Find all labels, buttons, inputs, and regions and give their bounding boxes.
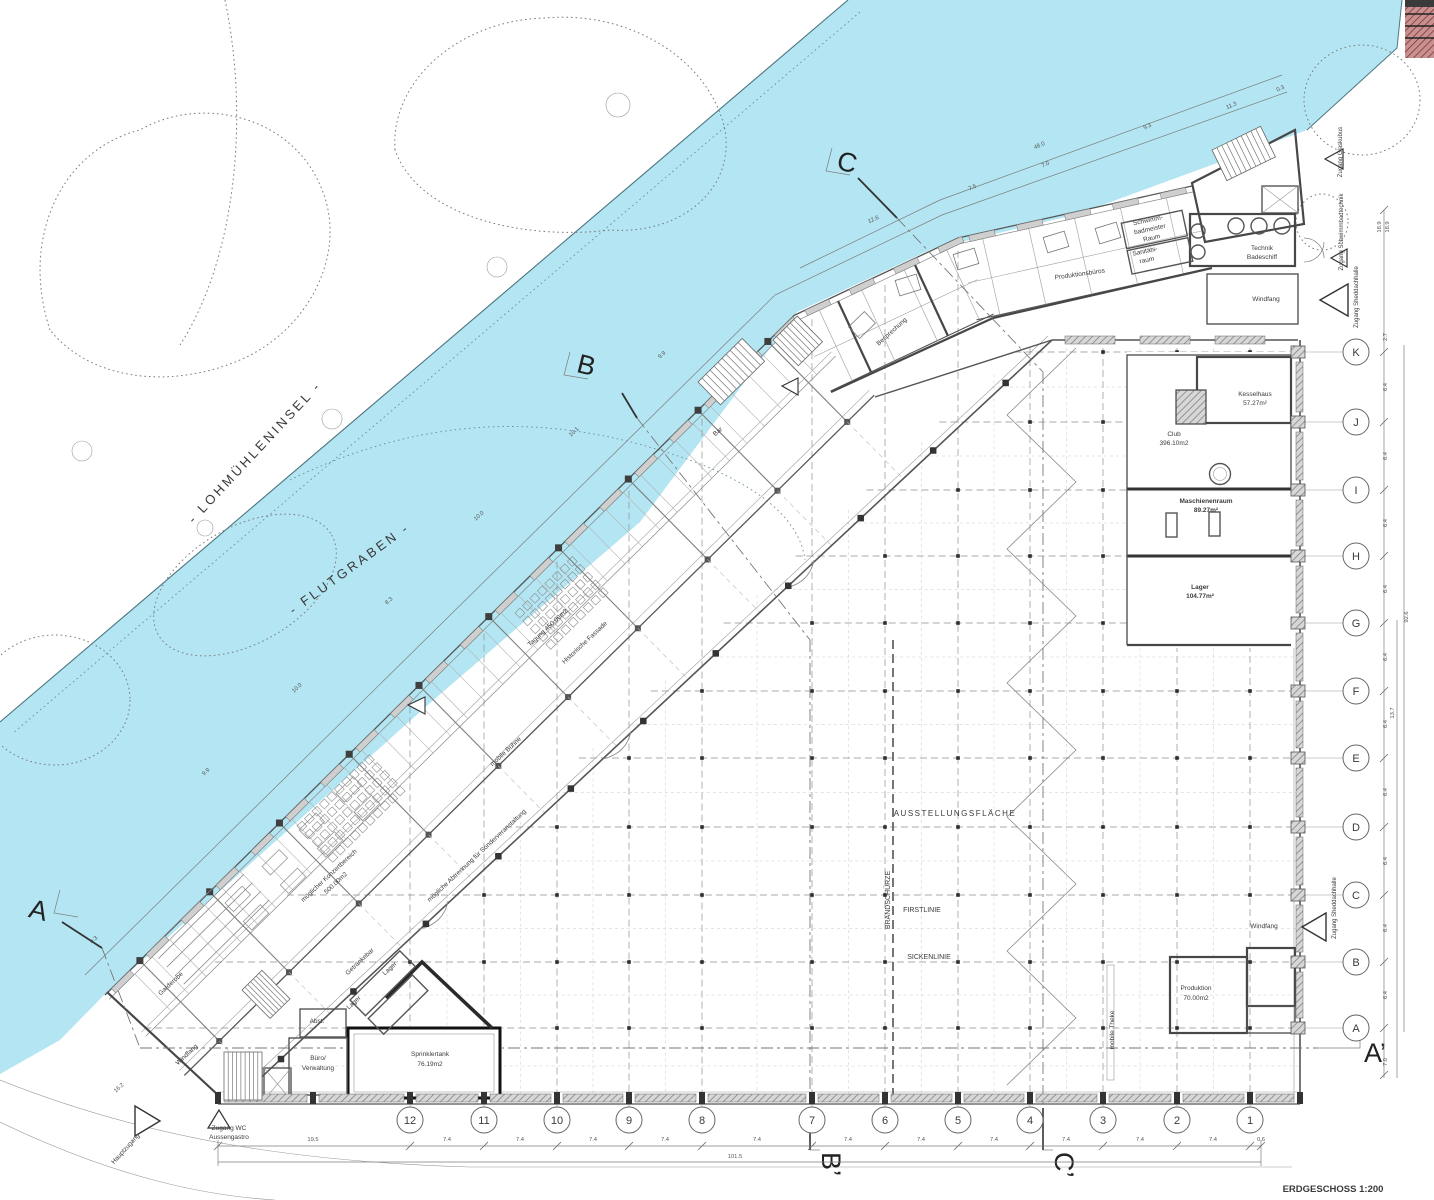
plan-rect <box>883 825 887 829</box>
plan-rect <box>561 625 571 635</box>
plan-rect <box>387 778 397 788</box>
plan-rect <box>956 756 960 760</box>
label-firstlinie: FIRSTLINIE <box>903 907 941 914</box>
plan-rect <box>1028 488 1032 492</box>
plan-rect <box>1296 432 1303 480</box>
glaskubus-door-2 <box>1304 242 1324 262</box>
plan-rect <box>485 613 492 620</box>
plan-rect <box>327 807 337 817</box>
plan-rect <box>955 1092 961 1104</box>
plan-line <box>831 318 993 392</box>
plan-rect <box>546 639 556 649</box>
plan-line <box>993 268 1212 318</box>
label-maschinenraum-1: Maschienenraum <box>1179 498 1232 505</box>
label-maschinenraum-2: 89.27m² <box>1194 507 1219 514</box>
label-ausstellungsflaeche: AUSSTELLUNGSFLÄCHE <box>894 809 1017 818</box>
plan-rect <box>1101 420 1105 424</box>
plan-text: 7 <box>809 1115 815 1127</box>
label-windfang-right: Windfang <box>1250 923 1278 930</box>
plan-rect <box>276 820 283 827</box>
plan-rect <box>1291 956 1305 968</box>
dim-label: 7.4 <box>589 1137 598 1143</box>
plan-rect <box>1174 1092 1180 1104</box>
plan-text: F <box>1353 686 1360 698</box>
plan-rect <box>555 960 559 964</box>
plan-rect <box>1296 633 1303 681</box>
plan-rect <box>481 1092 487 1104</box>
plan-line <box>359 903 402 946</box>
plan-rect <box>1296 972 1303 1018</box>
plan-line <box>489 617 568 697</box>
plan-text: 9 <box>626 1115 632 1127</box>
plan-text: 7.0 <box>1383 1058 1389 1066</box>
plan-rect <box>1028 1026 1032 1030</box>
label-besprechung: Besprechung <box>875 316 908 347</box>
plan-rect <box>810 960 814 964</box>
plan-rect <box>810 621 814 625</box>
plan-rect <box>1101 1026 1105 1030</box>
label-zugang-schwimmbadtechnik: Zugang Schwimmbadtechnik <box>1339 192 1345 270</box>
plan-rect <box>1028 960 1032 964</box>
plan-rect <box>635 1094 696 1102</box>
plan-rect <box>1296 362 1303 412</box>
plan-rect <box>883 756 887 760</box>
plan-rect <box>343 822 353 832</box>
plan-rect <box>699 1092 705 1104</box>
plan-rect <box>320 814 330 824</box>
plan-text: C’ <box>1049 1152 1079 1178</box>
plan-rect <box>576 595 586 605</box>
plan-rect <box>1028 420 1032 424</box>
plan-text: 8 <box>699 1115 705 1127</box>
plan-rect <box>1291 685 1305 697</box>
label-produktion-1: Produktion <box>1180 985 1211 992</box>
plan-rect <box>626 1092 632 1104</box>
plan-rect <box>380 770 390 780</box>
plan-rect <box>1101 554 1105 558</box>
plan-rect <box>358 808 368 818</box>
plan-text: 6.4 <box>1383 518 1389 527</box>
plan-rect <box>327 822 337 832</box>
plan-rect <box>1028 621 1032 625</box>
label-sickenlinie: SICKENLINIE <box>907 954 951 961</box>
plan-text: G <box>1352 618 1361 630</box>
plan-rect <box>1065 336 1115 344</box>
plan-rect <box>350 988 357 995</box>
plan-rect <box>554 1092 560 1104</box>
plan-rect <box>1183 1094 1244 1102</box>
plan-rect <box>1256 1094 1294 1102</box>
plan-rect <box>1175 1026 1179 1030</box>
plan-text: B <box>1352 957 1359 969</box>
plan-text: 16.2 <box>113 1082 125 1094</box>
plan-text: 4 <box>1027 1115 1033 1127</box>
plan-rect <box>1291 484 1305 496</box>
plan-rect <box>700 960 704 964</box>
plan-text: 5 <box>955 1115 961 1127</box>
plan-text: 6.4 <box>1383 719 1389 728</box>
plan-text: 6.4 <box>1383 856 1389 865</box>
plan-text: 11 <box>478 1115 489 1127</box>
plan-rect <box>1296 768 1303 817</box>
plan-rect <box>1296 500 1303 546</box>
plan-line <box>559 548 638 628</box>
plan-rect <box>278 1056 285 1063</box>
plan-text: raum <box>1139 255 1155 265</box>
plan-rect <box>1296 905 1303 952</box>
plan-text: H <box>1352 551 1360 563</box>
plan-rect <box>956 488 960 492</box>
plan-rect <box>1140 336 1190 344</box>
plan-rect <box>490 1094 551 1102</box>
plan-rect <box>343 838 353 848</box>
plan-text: 10 <box>551 1115 563 1127</box>
entrance-triangle-sheddachhalle-right <box>1302 913 1326 941</box>
tree-trunk-3 <box>322 409 342 429</box>
plan-rect <box>482 893 486 897</box>
plan-rect <box>956 1026 960 1030</box>
tree-trunk-5 <box>197 520 213 536</box>
plan-text: B’ <box>816 1152 846 1176</box>
plan-rect <box>1175 825 1179 829</box>
plan-rect <box>335 815 345 825</box>
plan-rect <box>883 554 887 558</box>
plan-rect <box>1101 689 1105 693</box>
dim-label: 7.4 <box>443 1137 452 1143</box>
dim-label: 7.4 <box>1209 1137 1218 1143</box>
plan-rect <box>350 785 360 795</box>
plan-rect <box>1175 689 1179 693</box>
plan-rect <box>407 1092 413 1104</box>
label-zugang-sheddachhalle-top: Zugang Sheddachhalle <box>1354 265 1360 327</box>
plan-rect <box>280 868 306 893</box>
dim-label: 7.4 <box>917 1137 926 1143</box>
label-sprinklertank-2: 76.19m2 <box>417 1061 443 1068</box>
plan-text: 6.4 <box>1383 652 1389 661</box>
label-club-1: Club <box>1167 431 1181 438</box>
plan-rect <box>627 825 631 829</box>
dim-label: 7.4 <box>516 1137 525 1143</box>
plan-text: C <box>1352 890 1360 902</box>
plan-rect <box>764 338 771 345</box>
plan-rect <box>482 960 486 964</box>
plan-rect <box>1291 889 1305 901</box>
plan-line <box>915 265 948 336</box>
label-mobile-theke: mobile Theke <box>1109 1010 1116 1049</box>
plan-line <box>498 766 545 813</box>
plan-text: 13.7 <box>1390 707 1396 718</box>
kesselhaus-chimney <box>1176 390 1206 424</box>
plan-text: 6.4 <box>1383 382 1389 391</box>
plan-rect <box>310 1092 316 1104</box>
plan-rect <box>415 682 422 689</box>
plan-rect <box>1028 689 1032 693</box>
plan-rect <box>1291 1022 1305 1034</box>
plan-line <box>419 685 498 765</box>
plan-line <box>904 270 937 341</box>
plan-rect <box>1101 621 1105 625</box>
plan-text: 1 <box>1247 1115 1253 1127</box>
plan-rect <box>883 689 887 693</box>
plan-rect <box>591 595 601 605</box>
plan-text: E <box>1352 753 1359 765</box>
plan-rect <box>555 893 559 897</box>
plan-rect <box>956 621 960 625</box>
plan-rect <box>555 1026 559 1030</box>
plan-line <box>638 628 688 679</box>
plan-line <box>309 802 346 839</box>
dim-label: 7.4 <box>990 1137 999 1143</box>
plan-line <box>1029 228 1046 304</box>
plan-rect <box>1248 689 1252 693</box>
plan-rect <box>1296 566 1303 613</box>
label-zugang-wc-1: Zugang WC <box>212 1125 247 1132</box>
label-windfang-top: Windfang <box>1252 296 1280 303</box>
plan-line <box>289 972 330 1013</box>
plan-rect <box>555 825 559 829</box>
plan-rect <box>1248 756 1252 760</box>
label-hauptzugang: Hauptzugang <box>110 1132 141 1166</box>
plan-rect <box>1175 756 1179 760</box>
plan-rect <box>136 957 143 964</box>
plan-rect <box>883 1026 887 1030</box>
plan-rect <box>695 407 702 414</box>
plan-rect <box>553 632 563 642</box>
plan-text: K <box>1352 347 1360 359</box>
stairs <box>224 1052 262 1100</box>
label-buero-1: Büro/ <box>310 1055 326 1062</box>
plan-line <box>862 290 895 361</box>
plan-text: 6.4 <box>1383 787 1389 796</box>
plan-rect <box>304 814 314 824</box>
plan-line <box>983 239 1000 315</box>
plan-rect <box>1248 1026 1252 1030</box>
plan-rect <box>964 1094 1024 1102</box>
plan-rect <box>1175 893 1179 897</box>
plan-rect <box>583 603 593 613</box>
plan-line <box>947 250 980 321</box>
plan-rect <box>700 689 704 693</box>
plan-line <box>205 905 242 942</box>
plan-rect <box>576 610 586 620</box>
tree-trunk-2 <box>487 257 507 277</box>
plan-rect <box>956 960 960 964</box>
plan-text: 3 <box>1100 1115 1106 1127</box>
plan-rect <box>810 1026 814 1030</box>
plan-rect <box>372 763 382 773</box>
plan-rect <box>1028 893 1032 897</box>
plan-rect <box>882 1092 888 1104</box>
glaskubus-door-1 <box>1304 238 1324 258</box>
plan-rect <box>319 1094 404 1102</box>
plan-rect <box>1291 752 1305 764</box>
plan-rect <box>1101 350 1105 354</box>
plan-rect <box>956 554 960 558</box>
label-produktion-2: 70.00m2 <box>1183 995 1209 1002</box>
label-produktionsbueros: Produktionsbüros <box>1054 267 1106 281</box>
plan-rect <box>416 1094 478 1102</box>
plan-line <box>698 410 777 490</box>
plan-text: 101.5 <box>728 1154 743 1160</box>
plan-rect <box>365 800 375 810</box>
plan-rect <box>1160 187 1187 199</box>
plan-rect <box>1247 1092 1253 1104</box>
plan-rect <box>930 447 937 454</box>
plan-rect <box>1291 821 1305 833</box>
plan-rect <box>810 825 814 829</box>
plan-rect <box>346 751 353 758</box>
plan-rect <box>1028 825 1032 829</box>
label-technik-2: Badeschiff <box>1247 254 1277 261</box>
plan-rect <box>380 801 390 811</box>
plan-rect <box>708 1094 806 1102</box>
shed-roof-zigzag <box>1007 348 1076 1085</box>
dim-label: 7.4 <box>661 1137 670 1143</box>
plan-rect <box>700 893 704 897</box>
plan-text: 6.4 <box>1383 923 1389 932</box>
label-zugang-sheddachhalle-right: Zugang Sheddachhalle <box>1332 876 1338 938</box>
plan-text: 2.7 <box>1383 333 1389 341</box>
plan-rect <box>1248 893 1252 897</box>
plan-rect <box>1296 701 1303 748</box>
plan-rect <box>1028 756 1032 760</box>
plan-rect <box>358 823 368 833</box>
tree-trunk-4 <box>72 441 92 461</box>
plan-text: 6.4 <box>1383 451 1389 460</box>
plan-rect <box>713 650 720 657</box>
building-left-edge <box>107 992 218 1095</box>
plan-line <box>397 716 434 753</box>
plan-rect <box>215 1092 221 1104</box>
plan-line <box>568 697 616 746</box>
plan-rect <box>1002 380 1009 387</box>
dim-label: 19.5 <box>307 1137 318 1143</box>
label-abst: Abst. <box>310 1018 325 1025</box>
dim-label: 7.4 <box>1136 1137 1145 1143</box>
plan-rect <box>563 1094 623 1102</box>
plan-rect <box>495 853 502 860</box>
plan-rect <box>328 837 338 847</box>
floorplan-sheet: C B A A’ B’ C’ <box>0 0 1434 1200</box>
plan-rect <box>640 718 647 725</box>
plan-text: A <box>1352 1023 1360 1035</box>
label-getraenkebar: Getränkebar <box>344 946 376 976</box>
plan-rect <box>1101 893 1105 897</box>
plan-line <box>187 922 224 959</box>
plan-line <box>170 940 207 977</box>
plan-line <box>349 754 428 834</box>
plan-rect <box>810 756 814 760</box>
island-path-dotted <box>180 0 237 345</box>
plan-rect <box>700 1026 704 1030</box>
plan-rect <box>1291 346 1305 358</box>
label-club-2: 396.10m2 <box>1160 440 1189 447</box>
plan-rect <box>809 1092 815 1104</box>
plan-rect <box>857 515 864 522</box>
plan-rect <box>627 893 631 897</box>
label-mobile-buehne: mobile Bühne <box>489 736 523 768</box>
plan-line <box>745 372 782 409</box>
label-sprinklertank-1: Sprinklertank <box>411 1051 450 1058</box>
floorplan-drawing: C B A A’ B’ C’ <box>0 0 1434 1200</box>
plan-rect <box>1101 488 1105 492</box>
room-windfang-right-box2 <box>1247 1006 1295 1033</box>
rooms-bottom-right <box>1107 948 1295 1080</box>
plan-text: 18.9 <box>1385 221 1391 232</box>
plan-line <box>431 682 468 719</box>
plan-rect <box>953 248 979 270</box>
label-technik-1: Technik <box>1251 245 1274 252</box>
plan-text: 6.4 <box>1383 584 1389 593</box>
dim-label: 7.4 <box>1062 1137 1071 1143</box>
label-buero-2: Verwaltung <box>302 1065 335 1072</box>
plan-rect <box>956 893 960 897</box>
plan-rect <box>810 689 814 693</box>
label-zugang-glaskubus: Zugang Glaskubus <box>1338 127 1344 177</box>
plan-rect <box>1027 1092 1033 1104</box>
dim-label: 7.4 <box>844 1137 853 1143</box>
plan-rect <box>335 830 345 840</box>
plan-rect <box>956 689 960 693</box>
plan-rect <box>1297 1092 1303 1104</box>
plan-text: 18.9 <box>1377 221 1383 232</box>
plan-rect <box>1101 756 1105 760</box>
plan-rect <box>423 921 430 928</box>
plan-rect <box>785 583 792 590</box>
plan-line <box>362 750 399 787</box>
label-brandschuerze: BRANDSCHÜRZE <box>884 871 892 930</box>
plan-rect <box>1405 0 1434 58</box>
plan-rect <box>224 1052 262 1100</box>
plan-rect <box>568 602 578 612</box>
plan-rect <box>1405 0 1434 7</box>
tree-trunk-1 <box>606 93 630 117</box>
entrance-triangle-sheddachhalle-top <box>1320 284 1348 316</box>
plan-rect <box>560 594 570 604</box>
plan-text: 12 <box>404 1115 416 1127</box>
plan-rect <box>1291 416 1305 428</box>
plan-text: J <box>1353 417 1359 429</box>
porthole-5 <box>1191 245 1205 259</box>
plan-line <box>728 389 765 426</box>
plan-rect <box>1028 554 1032 558</box>
plan-text: 2 <box>1174 1115 1180 1127</box>
plan-rect <box>627 756 631 760</box>
plan-text: I <box>1354 485 1357 497</box>
plan-text: 92.6 <box>1404 611 1410 622</box>
plan-rect <box>206 888 213 895</box>
plan-line <box>831 314 994 391</box>
label-lager-gross-1: Lager <box>1191 584 1209 591</box>
plan-line <box>708 559 760 612</box>
plan-rect <box>243 905 269 930</box>
plan-rect <box>1043 231 1069 253</box>
porthole-1 <box>1228 218 1244 234</box>
plan-rect <box>700 756 704 760</box>
dim-label: 7.4 <box>753 1137 762 1143</box>
plan-rect <box>627 1026 631 1030</box>
plan-text: 6 <box>882 1115 888 1127</box>
plan-rect <box>395 786 405 796</box>
plan-rect <box>810 893 814 897</box>
red-revision-mark <box>1405 0 1434 58</box>
plan-rect <box>1036 1094 1097 1102</box>
plan-rect <box>1291 550 1305 562</box>
plan-rect <box>1175 960 1179 964</box>
label-kesselhaus-2: 57.27m² <box>1243 400 1268 407</box>
plan-rect <box>1248 960 1252 964</box>
plan-line <box>222 888 259 925</box>
